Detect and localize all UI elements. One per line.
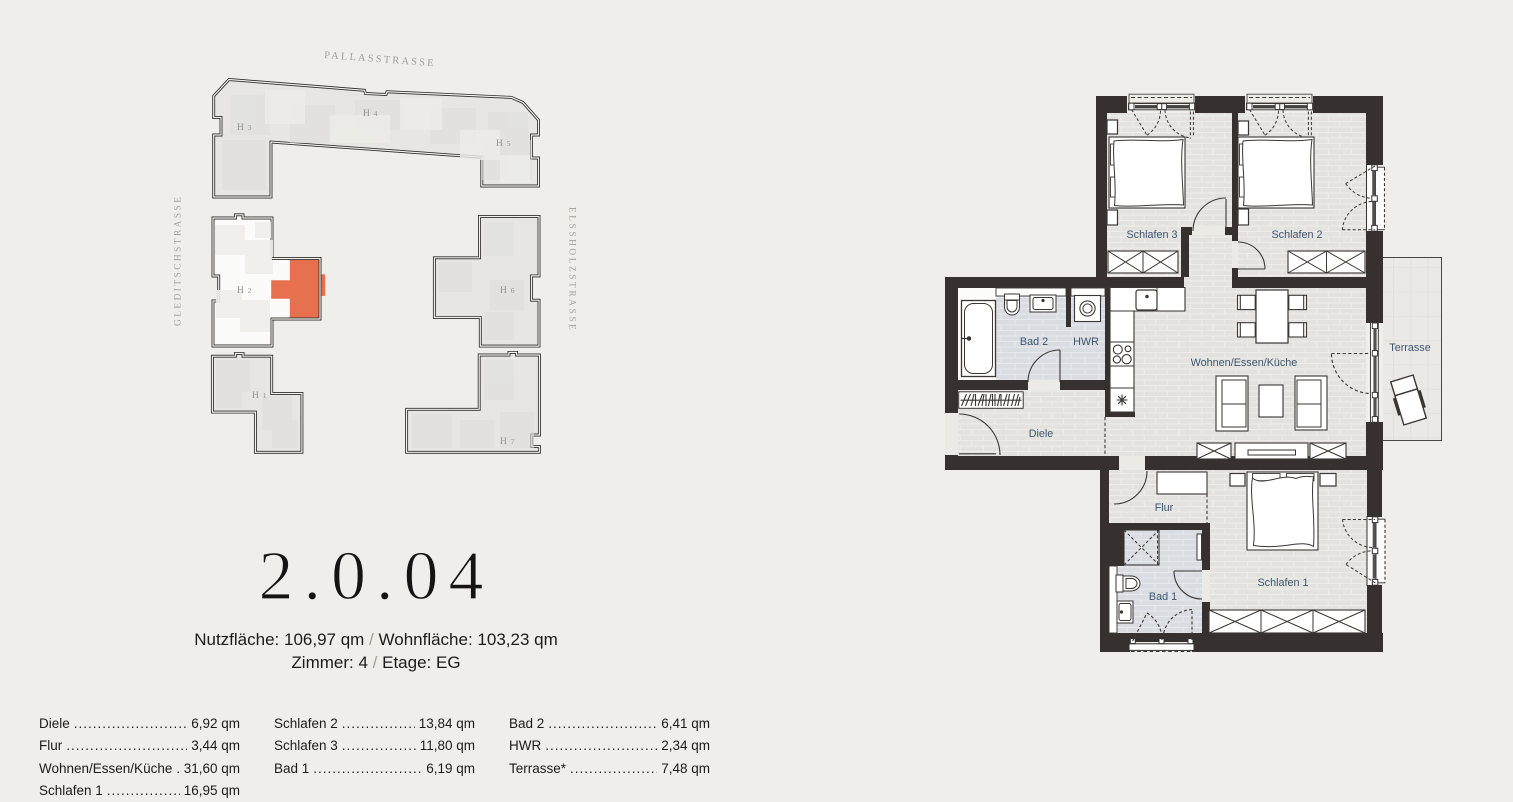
svg-text:H 1: H 1 xyxy=(252,391,268,401)
svg-text:HWR: HWR xyxy=(1073,336,1099,348)
svg-text:H 7: H 7 xyxy=(500,437,516,447)
svg-text:GLEDITSCHSTRASSE: GLEDITSCHSTRASSE xyxy=(174,195,184,326)
svg-text:Flur: Flur xyxy=(1155,502,1174,514)
svg-text:PALLASSTRASSE: PALLASSTRASSE xyxy=(324,50,436,69)
svg-text:H 5: H 5 xyxy=(496,139,512,149)
svg-text:Wohnen/Essen/Küche: Wohnen/Essen/Küche xyxy=(1191,357,1298,369)
svg-text:Schlafen 3: Schlafen 3 xyxy=(1126,229,1177,241)
svg-text:Schlafen 1: Schlafen 1 xyxy=(1257,577,1308,589)
svg-text:Diele: Diele xyxy=(1029,428,1054,440)
svg-text:Bad 1: Bad 1 xyxy=(1149,591,1177,603)
svg-text:ELSSHOLZSTRASSE: ELSSHOLZSTRASSE xyxy=(567,207,577,332)
svg-text:H 2: H 2 xyxy=(237,286,253,296)
svg-text:H 4: H 4 xyxy=(363,109,379,119)
svg-text:Schlafen 2: Schlafen 2 xyxy=(1271,229,1322,241)
svg-text:H 3: H 3 xyxy=(237,123,253,133)
svg-text:Bad 2: Bad 2 xyxy=(1020,336,1048,348)
svg-text:Terrasse: Terrasse xyxy=(1389,342,1430,354)
svg-text:H 6: H 6 xyxy=(500,286,516,296)
